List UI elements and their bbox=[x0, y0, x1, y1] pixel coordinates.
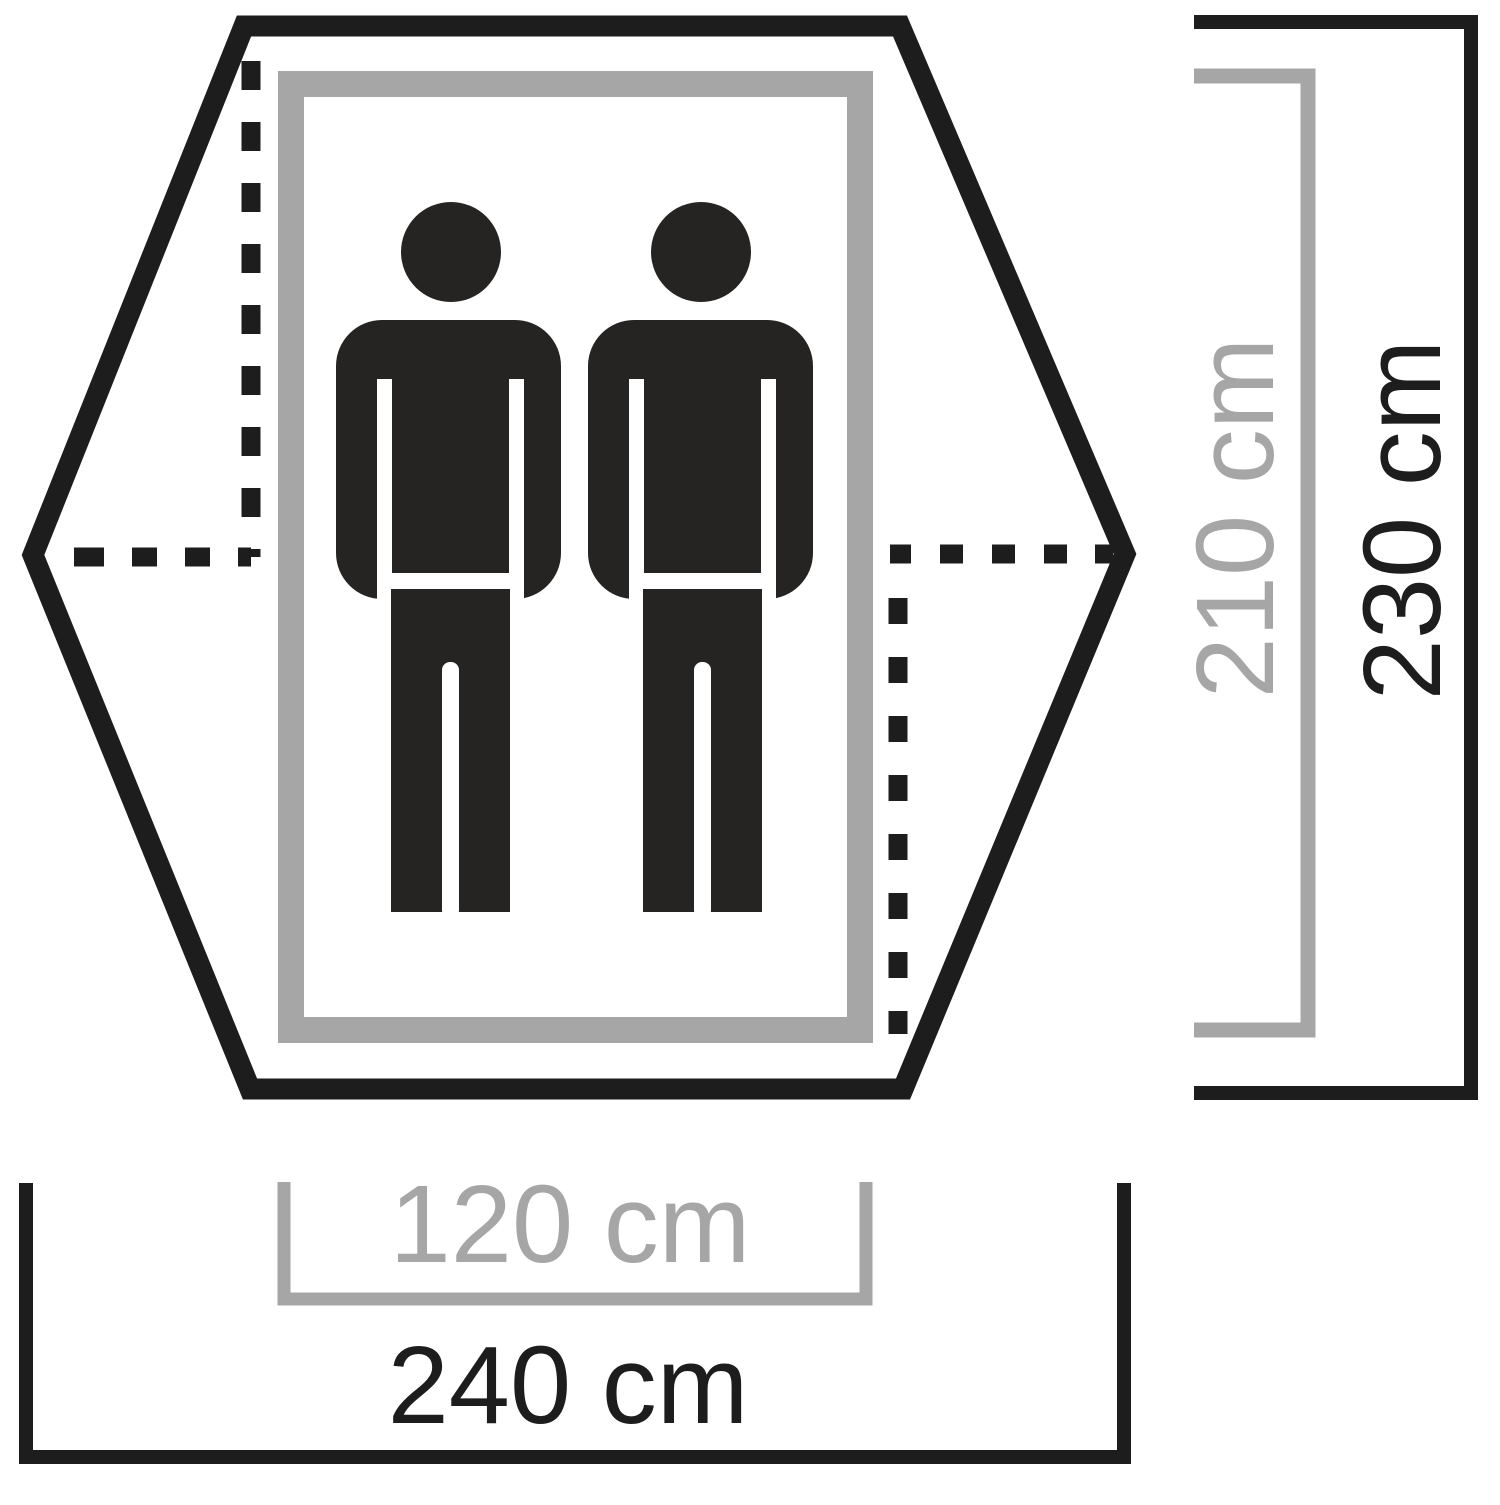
svg-text:240 cm: 240 cm bbox=[388, 1324, 749, 1447]
svg-text:210 cm: 210 cm bbox=[1174, 338, 1297, 699]
svg-text:230 cm: 230 cm bbox=[1341, 340, 1464, 701]
svg-text:120 cm: 120 cm bbox=[390, 1163, 751, 1286]
